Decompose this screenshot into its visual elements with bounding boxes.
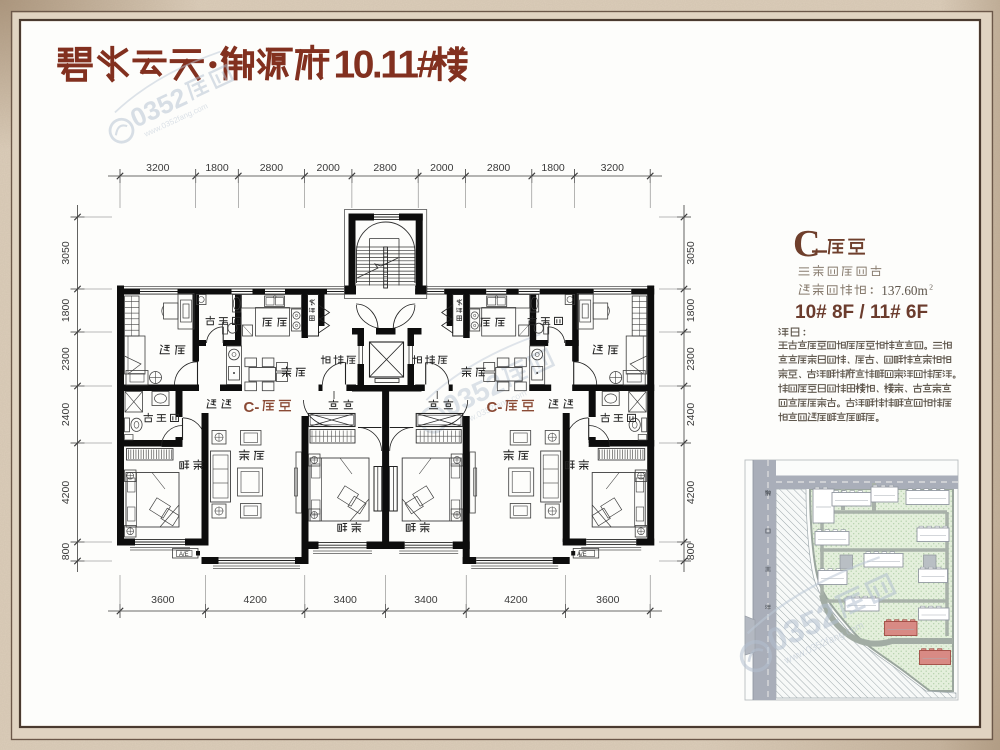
svg-text:2000: 2000	[317, 162, 341, 174]
svg-text:137.60m: 137.60m	[881, 283, 928, 298]
svg-text:1800: 1800	[205, 162, 229, 174]
svg-text:2400: 2400	[685, 403, 697, 427]
svg-text:3050: 3050	[60, 241, 72, 265]
svg-text:800: 800	[685, 543, 697, 561]
svg-text:1800: 1800	[685, 299, 697, 323]
svg-text:10# 8F / 11# 6F: 10# 8F / 11# 6F	[795, 302, 928, 323]
svg-text:2000: 2000	[430, 162, 454, 174]
svg-text:1800: 1800	[541, 162, 565, 174]
svg-text:2400: 2400	[60, 403, 72, 427]
svg-text:3400: 3400	[414, 594, 438, 606]
svg-text:4200: 4200	[504, 594, 528, 606]
svg-text:C-: C-	[487, 399, 503, 416]
svg-text:2300: 2300	[685, 347, 697, 371]
svg-text:3400: 3400	[334, 594, 358, 606]
svg-text:A/E: A/E	[179, 552, 189, 558]
svg-text:4200: 4200	[244, 594, 268, 606]
svg-text:3200: 3200	[146, 162, 170, 174]
svg-text:A/E: A/E	[577, 552, 587, 558]
svg-text:2300: 2300	[60, 347, 72, 371]
svg-text:2: 2	[929, 283, 933, 292]
svg-text:4200: 4200	[685, 481, 697, 505]
svg-text:3600: 3600	[151, 594, 175, 606]
svg-text:C: C	[793, 223, 820, 265]
svg-text:800: 800	[60, 543, 72, 561]
svg-text:2800: 2800	[487, 162, 511, 174]
svg-text:2800: 2800	[260, 162, 284, 174]
svg-text:2800: 2800	[373, 162, 397, 174]
svg-text:4200: 4200	[60, 481, 72, 505]
svg-text:10.11#: 10.11#	[334, 44, 439, 87]
svg-text:3600: 3600	[596, 594, 620, 606]
svg-text:1800: 1800	[60, 299, 72, 323]
svg-text:C-: C-	[244, 399, 260, 416]
svg-text:3200: 3200	[601, 162, 625, 174]
svg-text:3050: 3050	[685, 241, 697, 265]
